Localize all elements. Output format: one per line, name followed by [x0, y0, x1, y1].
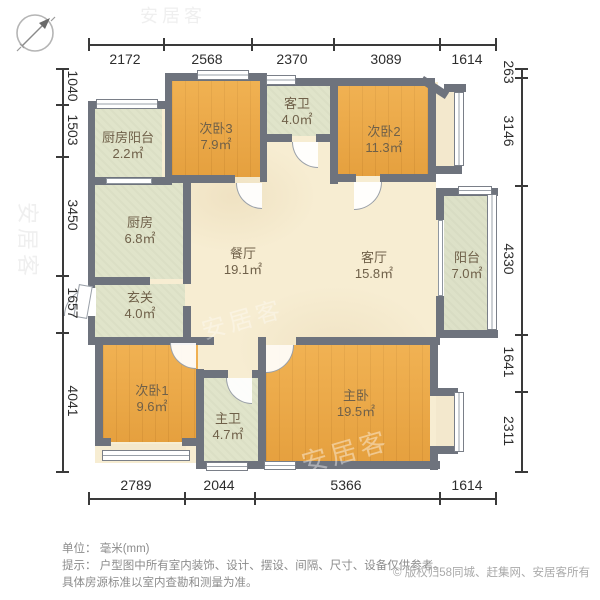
wall-segment: [95, 438, 111, 446]
room-name: 阳台: [451, 250, 482, 266]
room-label-dining-room: 餐厅 19.1㎡: [224, 246, 262, 278]
room-area: 4.7㎡: [212, 427, 243, 443]
wall-segment: [165, 175, 235, 183]
room-area: 11.3㎡: [365, 140, 402, 156]
dimension-left-2: 3450: [65, 185, 81, 245]
dimension-tick: [515, 185, 528, 187]
room-name: 厨房: [124, 215, 155, 231]
dimension-left-1: 1503: [65, 100, 81, 160]
compass-icon: [8, 6, 64, 62]
wall-segment: [196, 369, 204, 469]
dimension-tick: [439, 492, 441, 505]
floorplan-canvas: 厨房阳台 2.2㎡ 次卧3 7.9㎡ 客卫 4.0㎡ 次卧2 11.3㎡ 厨房 …: [0, 0, 600, 600]
wall-segment: [182, 438, 198, 446]
dimension-tick: [251, 38, 253, 51]
dimension-top-1: 2568: [172, 51, 242, 67]
room-name: 客厅: [355, 250, 393, 266]
room-label-balcony: 阳台 7.0㎡: [451, 250, 482, 282]
room-area: 19.5㎡: [337, 404, 375, 420]
watermark: 安居客: [140, 2, 206, 28]
wall-segment: [455, 84, 466, 92]
room-name: 主卧: [337, 388, 375, 404]
window: [454, 92, 464, 166]
dimension-tick: [56, 471, 69, 473]
dimension-bottom-3: 1614: [432, 477, 502, 493]
wall-segment: [330, 174, 356, 182]
room-label-entry: 玄关 4.0㎡: [124, 290, 155, 322]
sliding-door: [106, 178, 152, 184]
wall-segment: [196, 337, 204, 343]
room-name: 次卧1: [135, 383, 168, 399]
window: [197, 70, 249, 80]
room-label-master-bathroom: 主卫 4.7㎡: [212, 411, 243, 443]
dimension-right-2: 4330: [501, 229, 517, 289]
room-label-master-bedroom: 主卧 19.5㎡: [337, 388, 375, 420]
floorplan-drawing: 厨房阳台 2.2㎡ 次卧3 7.9㎡ 客卫 4.0㎡ 次卧2 11.3㎡ 厨房 …: [0, 0, 600, 600]
dimension-bottom-1: 2044: [184, 477, 254, 493]
dimension-tick: [254, 492, 256, 505]
wall-segment: [430, 337, 438, 393]
tip-note-line2: 具体房源标准以室内查勘和测量为准。: [62, 574, 258, 590]
dimension-top-3: 3089: [351, 51, 421, 67]
unit-note: 单位： 毫米(mm): [62, 540, 150, 556]
room-label-bedroom-2: 次卧2 11.3㎡: [365, 124, 402, 156]
wall-segment: [260, 78, 267, 182]
wall-segment: [204, 370, 228, 378]
window: [96, 99, 158, 109]
dimension-tick: [495, 492, 497, 505]
room-area: 4.0㎡: [124, 306, 155, 322]
room-area: 7.0㎡: [451, 266, 482, 282]
wall-segment: [95, 337, 103, 444]
room-label-kitchen-balcony: 厨房阳台 2.2㎡: [102, 130, 154, 162]
window: [454, 392, 464, 452]
wall-segment: [88, 277, 150, 285]
dimension-line-left: [62, 68, 64, 471]
window: [206, 462, 248, 471]
dimension-bottom-0: 2789: [101, 477, 171, 493]
wall-segment: [436, 188, 444, 220]
tip-note-line1: 提示： 户型图中所有室内装饰、设计、摆设、间隔、尺寸、设备仅供参考。: [62, 557, 445, 573]
wall-segment: [165, 73, 172, 185]
window: [102, 450, 190, 461]
room-name: 玄关: [124, 290, 155, 306]
dimension-tick: [184, 492, 186, 505]
wall-segment: [380, 174, 436, 182]
wall-segment: [183, 177, 191, 284]
room-label-guest-bathroom: 客卫 4.0㎡: [281, 96, 312, 128]
dimension-tick: [515, 471, 528, 473]
room-name: 餐厅: [224, 246, 262, 262]
room-area: 2.2㎡: [102, 146, 154, 162]
room-area: 7.9㎡: [199, 137, 232, 153]
dimension-bottom-2: 5366: [311, 477, 381, 493]
dimension-left-4: 4041: [65, 371, 81, 431]
dimension-top-0: 2172: [90, 51, 160, 67]
dimension-right-4: 2311: [501, 401, 517, 461]
window: [487, 194, 497, 330]
watermark: 安居客: [13, 202, 45, 280]
dimension-tick: [333, 38, 335, 51]
dimension-left-3: 1657: [65, 273, 81, 333]
dimension-tick: [439, 38, 441, 51]
dimension-right-0: 263: [501, 42, 517, 102]
wall-segment: [436, 330, 498, 338]
window: [264, 461, 296, 470]
dimension-right-3: 1641: [501, 332, 517, 392]
dimension-line-right: [521, 68, 523, 471]
room-name: 主卫: [212, 411, 243, 427]
wall-segment: [258, 370, 266, 469]
bay: [436, 396, 456, 448]
sliding-door: [438, 220, 443, 296]
dimension-tick: [163, 38, 165, 51]
copyright-note: © 版权归58同城、赶集网、安居客所有: [393, 564, 590, 580]
room-label-living-room: 客厅 15.8㎡: [355, 250, 393, 282]
room-area: 15.8㎡: [355, 266, 393, 282]
room-name: 厨房阳台: [102, 130, 154, 146]
wall-segment: [296, 337, 440, 345]
dimension-tick: [88, 38, 90, 51]
room-area: 4.0㎡: [281, 112, 312, 128]
wall-segment: [330, 78, 338, 184]
room-label-bedroom-1: 次卧1 9.6㎡: [135, 383, 168, 415]
window: [266, 75, 296, 85]
dimension-top-4: 1614: [432, 51, 502, 67]
room-name: 次卧3: [199, 121, 232, 137]
room-area: 19.1㎡: [224, 262, 262, 278]
bay: [436, 92, 456, 166]
room-label-kitchen: 厨房 6.8㎡: [124, 215, 155, 247]
room-name: 次卧2: [365, 124, 402, 140]
room-label-bedroom-3: 次卧3 7.9㎡: [199, 121, 232, 153]
exterior-mask: [86, 64, 166, 102]
room-name: 客卫: [281, 96, 312, 112]
dimension-line-top: [88, 44, 495, 46]
wall-segment: [428, 86, 436, 174]
room-area: 9.6㎡: [135, 399, 168, 415]
dimension-line-bottom: [88, 498, 495, 500]
wall-segment: [260, 134, 292, 142]
dimension-right-1: 3146: [501, 101, 517, 161]
dimension-tick: [88, 492, 90, 505]
wall-segment: [428, 166, 462, 174]
dimension-top-2: 2370: [257, 51, 327, 67]
room-area: 6.8㎡: [124, 231, 155, 247]
dimension-tick: [495, 38, 497, 51]
